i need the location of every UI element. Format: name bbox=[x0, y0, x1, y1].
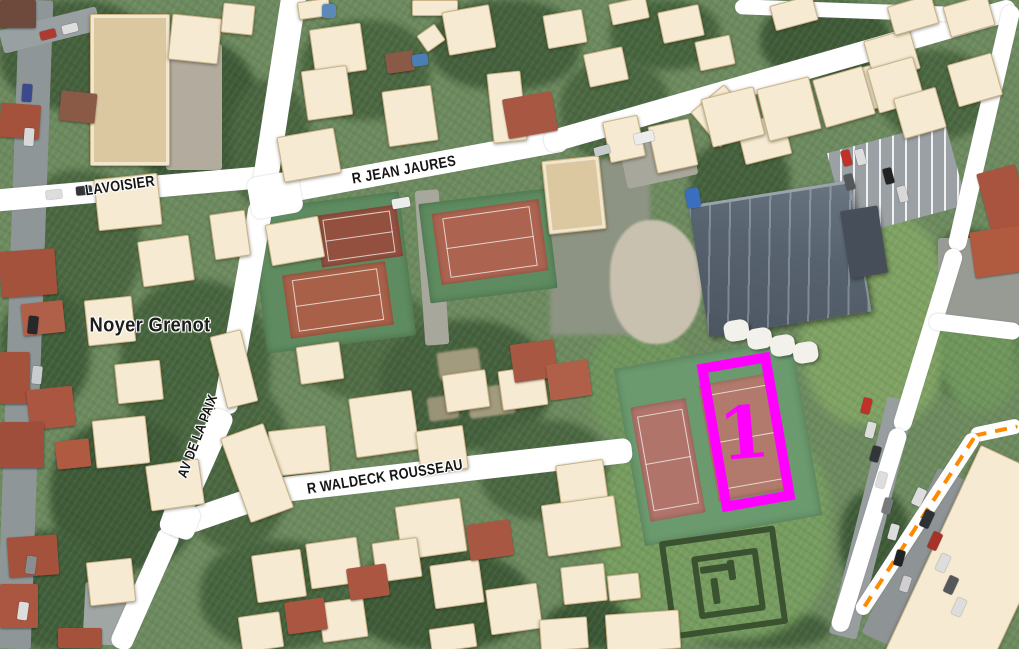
house-roof bbox=[969, 224, 1019, 278]
building-footprint bbox=[647, 118, 698, 174]
court-marker-number[interactable]: 1 bbox=[716, 395, 772, 471]
house-roof bbox=[385, 50, 416, 74]
building-footprint bbox=[694, 35, 735, 72]
car bbox=[27, 316, 39, 335]
house-roof bbox=[58, 628, 102, 648]
hedge-maze bbox=[691, 548, 766, 620]
place-label-noyer-grenot: Noyer Grenot bbox=[90, 315, 211, 338]
house-roof bbox=[346, 563, 390, 600]
house-roof bbox=[0, 422, 44, 468]
building-footprint bbox=[756, 76, 821, 141]
building-footprint bbox=[942, 0, 995, 38]
car bbox=[23, 128, 34, 147]
building-footprint bbox=[238, 611, 285, 649]
building-footprint bbox=[607, 572, 642, 601]
building-footprint bbox=[560, 563, 608, 605]
building-footprint bbox=[168, 14, 223, 65]
car bbox=[31, 366, 43, 385]
building-footprint bbox=[209, 210, 251, 261]
house-roof bbox=[55, 438, 92, 469]
car bbox=[391, 197, 410, 210]
building-footprint bbox=[541, 155, 606, 235]
building-footprint bbox=[542, 9, 587, 49]
building-footprint bbox=[381, 85, 438, 147]
building-footprint bbox=[429, 559, 485, 610]
building-footprint bbox=[539, 616, 589, 649]
map-canvas[interactable]: LAVOISIER R JEAN JAURES R WALDECK ROUSSE… bbox=[0, 0, 1019, 649]
building-footprint bbox=[251, 549, 307, 603]
building-footprint bbox=[442, 4, 497, 56]
building-footprint bbox=[114, 360, 164, 405]
car bbox=[21, 84, 32, 103]
sports-hall bbox=[689, 180, 872, 337]
building-footprint bbox=[348, 390, 420, 458]
building-footprint bbox=[90, 14, 170, 166]
car bbox=[46, 189, 63, 200]
building-footprint bbox=[605, 609, 682, 649]
house-roof bbox=[0, 352, 30, 404]
pool bbox=[322, 4, 336, 18]
house-roof bbox=[502, 91, 558, 139]
house-roof bbox=[59, 90, 98, 124]
house-roof bbox=[466, 519, 515, 561]
house-roof bbox=[0, 248, 58, 298]
building-footprint bbox=[485, 583, 543, 636]
building-footprint bbox=[221, 2, 256, 35]
house-roof bbox=[284, 597, 328, 634]
paved-area bbox=[610, 220, 702, 344]
building-footprint bbox=[296, 341, 345, 385]
tennis-court bbox=[432, 199, 549, 285]
house-roof bbox=[546, 359, 593, 400]
restricted-lane-dashes bbox=[974, 423, 1018, 436]
building-footprint bbox=[86, 558, 136, 607]
building-footprint bbox=[137, 235, 195, 288]
building-footprint bbox=[92, 415, 151, 468]
building-footprint bbox=[145, 458, 205, 511]
building-footprint bbox=[541, 495, 622, 557]
building-footprint bbox=[301, 65, 354, 121]
house-roof bbox=[0, 0, 36, 28]
house-roof bbox=[0, 103, 41, 140]
building-footprint bbox=[442, 369, 491, 413]
pool bbox=[411, 53, 429, 67]
